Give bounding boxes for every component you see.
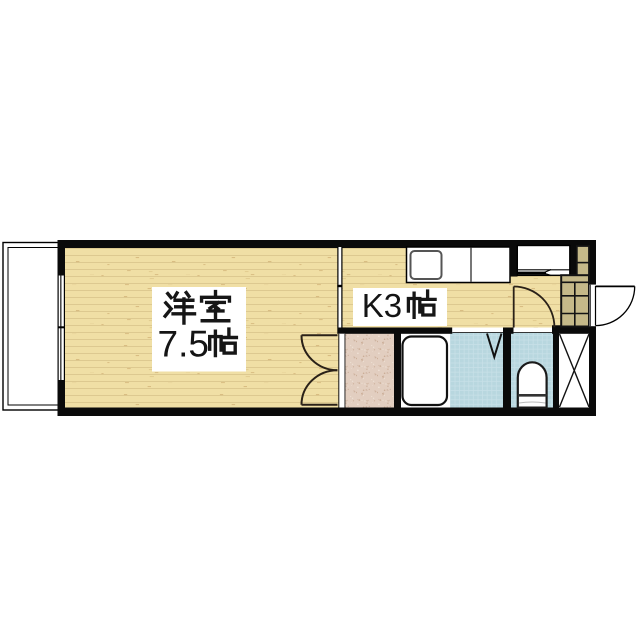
svg-text:7.5: 7.5 (158, 323, 209, 364)
svg-text:K3: K3 (362, 287, 402, 324)
